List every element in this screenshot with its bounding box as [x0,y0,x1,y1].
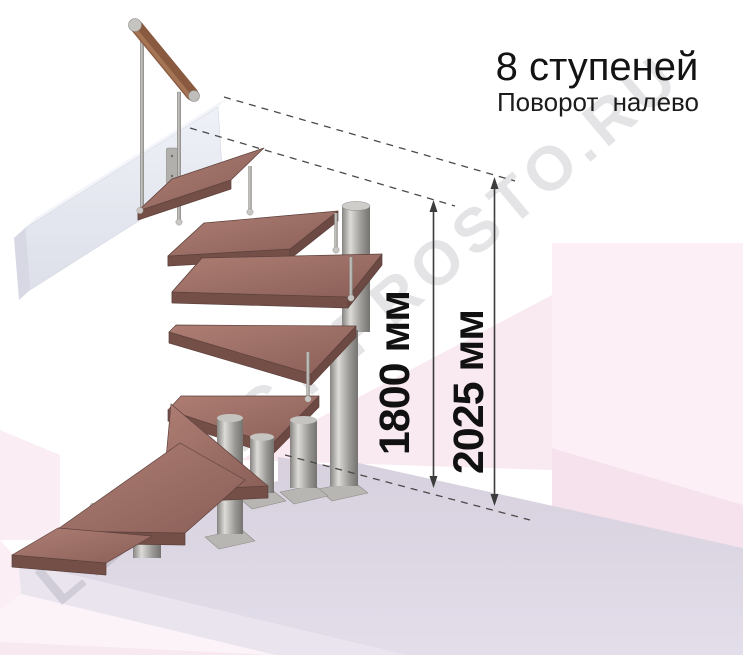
baluster-rod [248,166,251,214]
support-post-cap [250,433,274,441]
center-column-cap [342,202,370,211]
rod-joint [176,219,182,225]
support-post-cap [290,416,317,424]
rod-joint [247,209,253,215]
staircase-diagram: LESTNICY-PROSTO.RU [0,0,743,655]
rod-joint [333,247,339,253]
header: 8 ступеней Поворот налево [496,45,699,117]
dimension-label-1800: 1800 мм [371,291,419,455]
dimension-label-2025: 2025 мм [445,310,493,474]
handrail-cap [189,91,200,102]
baluster-rod [306,352,309,398]
page-subtitle: Поворот налево [497,87,699,117]
rod-joint [348,295,354,301]
page-title: 8 ступеней [496,45,699,89]
bracket-screw [171,155,173,157]
baluster-rod [140,29,143,210]
support-post [290,420,317,488]
handrail-cap [129,19,142,32]
baluster-rod [334,213,337,249]
bracket-screw [171,175,173,177]
baluster-rod [349,257,352,298]
diagram-canvas: LESTNICY-PROSTO.RU [0,0,743,655]
support-post-cap [217,414,243,422]
rod-joint [305,396,311,402]
rod-joint [137,207,143,213]
